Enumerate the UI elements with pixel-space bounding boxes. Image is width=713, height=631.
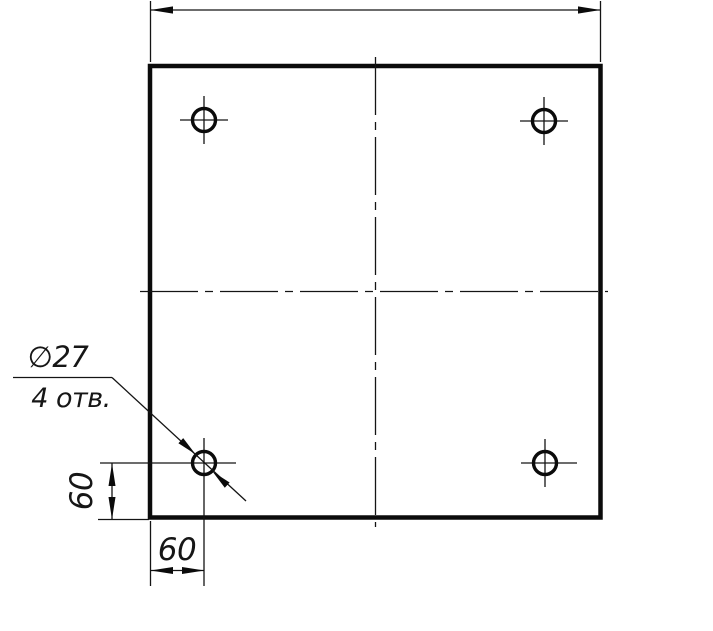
- dimension-arrow-down: [109, 497, 116, 520]
- leader-arrow-upper: [178, 438, 195, 454]
- dimension-arrow-up: [109, 464, 116, 487]
- label-hole-diameter: ∅27: [28, 340, 90, 374]
- dimension-arrow-right: [182, 567, 205, 574]
- leader-arrow-lower: [213, 472, 230, 488]
- dimension-arrow-left: [151, 567, 174, 574]
- plate-drawing: 60 60 ∅27 4 отв.: [0, 0, 713, 631]
- label-hole-count: 4 отв.: [31, 383, 111, 414]
- dimension-text-bottom: 60: [158, 532, 196, 568]
- dimension-text-left: 60: [64, 472, 100, 510]
- hole-crosshair-bottom-right: [521, 439, 577, 487]
- hole-crosshair-top-right: [520, 97, 568, 145]
- hole-callout: ∅27 4 отв.: [13, 340, 246, 501]
- dimension-arrow-left: [151, 6, 174, 13]
- dimension-left-60: 60: [64, 463, 149, 520]
- dimension-bottom-60: 60: [151, 521, 205, 586]
- drawing-canvas: 60 60 ∅27 4 отв.: [0, 0, 713, 631]
- dimension-top: [151, 1, 601, 62]
- hole-crosshair-top-left: [180, 96, 228, 144]
- dimension-arrow-right: [578, 6, 601, 13]
